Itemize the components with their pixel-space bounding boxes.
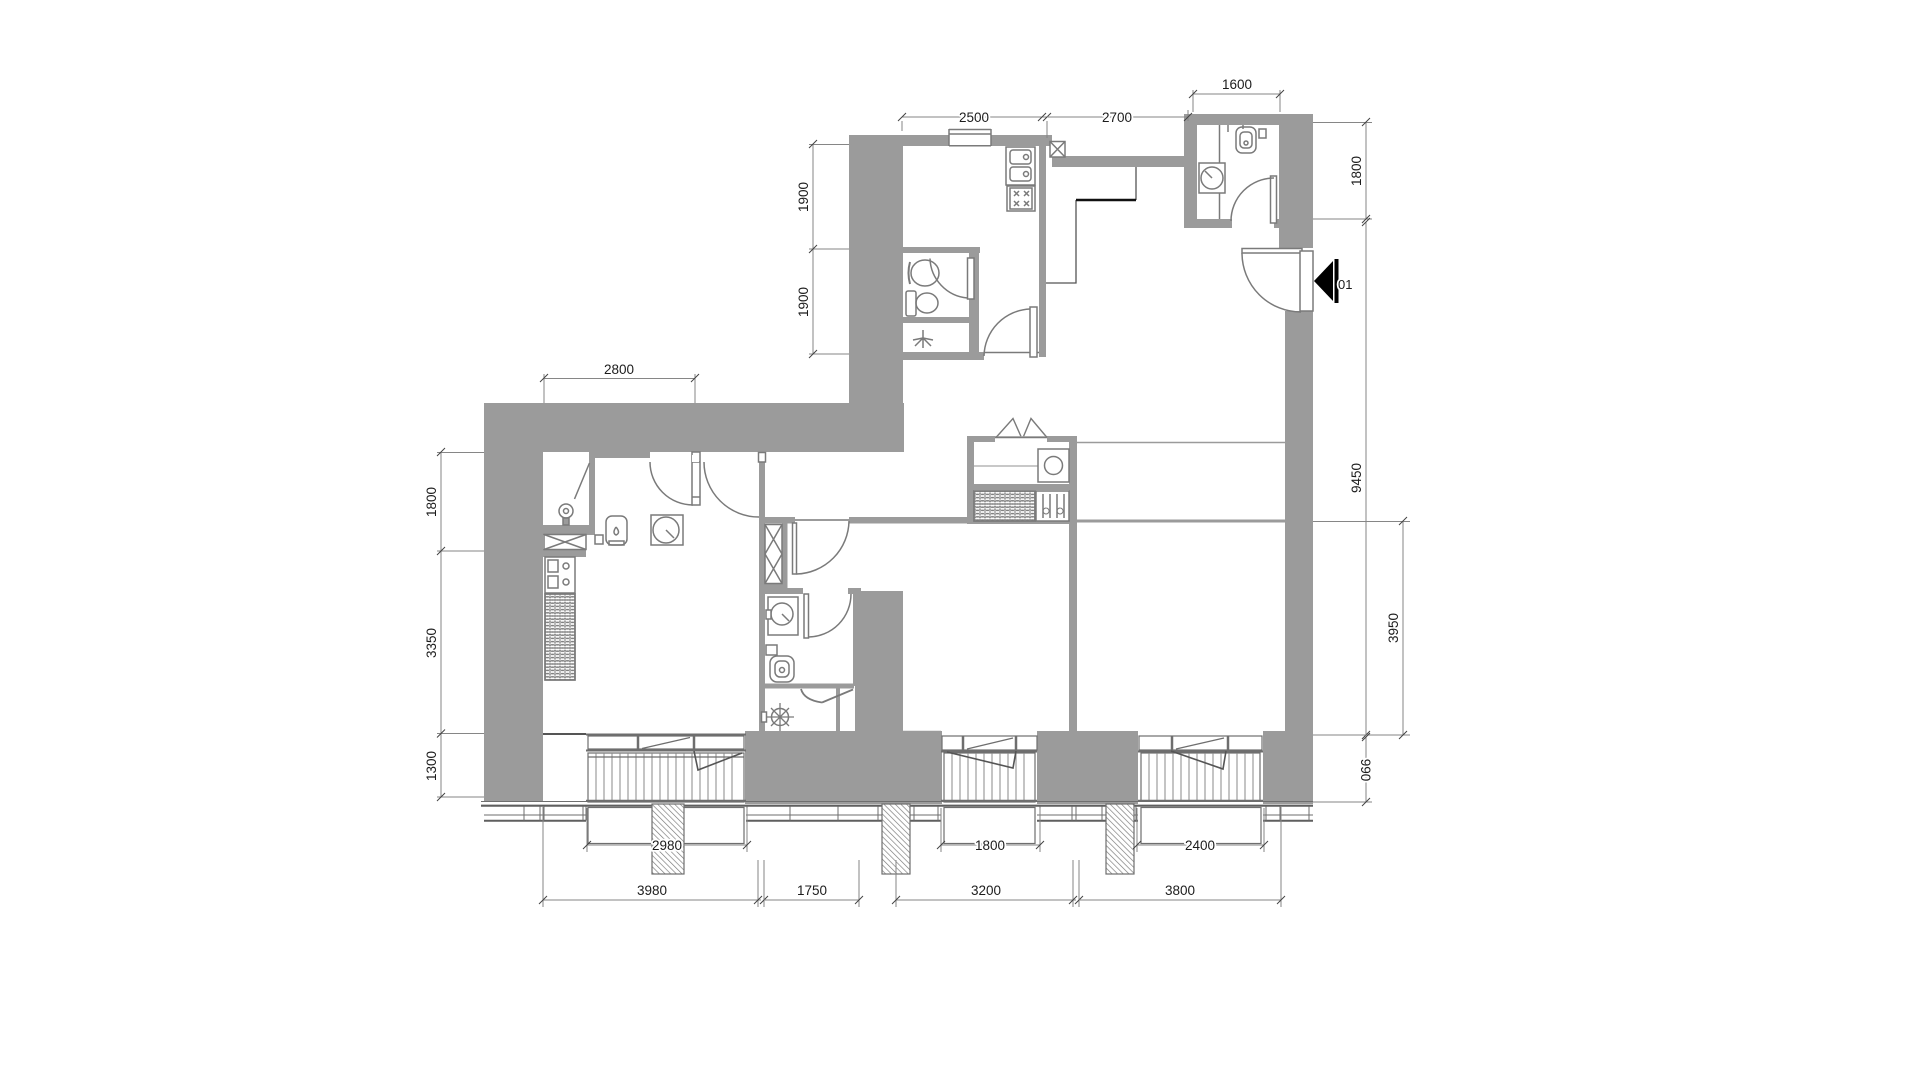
svg-text:1800: 1800: [975, 838, 1005, 853]
svg-text:3350: 3350: [424, 628, 439, 658]
svg-text:1800: 1800: [1349, 156, 1364, 186]
svg-text:2400: 2400: [1185, 838, 1215, 853]
svg-text:2800: 2800: [604, 362, 634, 377]
svg-text:1800: 1800: [424, 487, 439, 517]
svg-text:990: 990: [1358, 759, 1373, 782]
svg-text:2980: 2980: [652, 838, 682, 853]
svg-text:1750: 1750: [797, 883, 827, 898]
svg-text:2700: 2700: [1102, 110, 1132, 125]
svg-text:1900: 1900: [796, 182, 811, 212]
svg-text:01: 01: [1338, 277, 1352, 292]
svg-text:1900: 1900: [796, 287, 811, 317]
svg-text:2500: 2500: [959, 110, 989, 125]
svg-text:3950: 3950: [1386, 613, 1401, 643]
svg-text:3800: 3800: [1165, 883, 1195, 898]
svg-text:1300: 1300: [424, 751, 439, 781]
svg-text:3200: 3200: [971, 883, 1001, 898]
svg-text:9450: 9450: [1349, 463, 1364, 493]
svg-text:1600: 1600: [1222, 77, 1252, 92]
svg-text:3980: 3980: [637, 883, 667, 898]
